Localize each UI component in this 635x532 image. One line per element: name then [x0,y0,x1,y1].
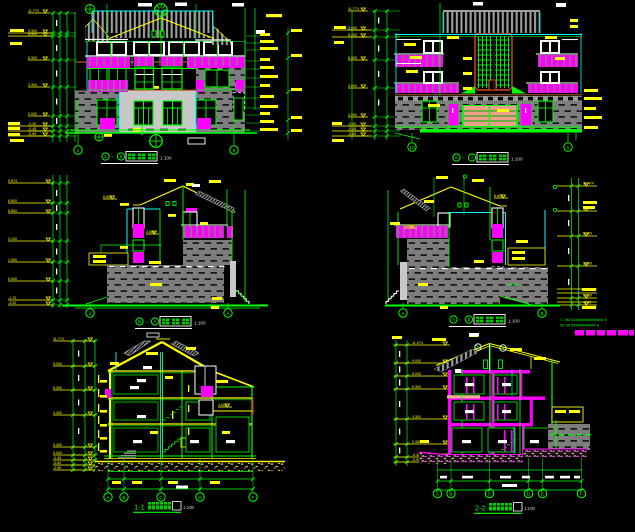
svg-text:C: C [488,491,492,497]
svg-text:-2.00: -2.00 [8,301,16,305]
svg-text:D: D [527,491,531,497]
svg-text:2-2: 2-2 [475,504,486,513]
svg-text:B: B [540,311,543,317]
svg-text:1:100: 1:100 [508,319,520,324]
svg-text:6.300: 6.300 [412,385,421,389]
svg-text:1.500: 1.500 [8,258,17,262]
svg-text:5.100: 5.100 [583,232,592,236]
svg-text:1:100: 1:100 [194,321,206,326]
svg-text:-1.70: -1.70 [8,296,16,300]
svg-text:B: B [122,495,125,501]
svg-text:11.774: 11.774 [348,7,359,11]
svg-text:-0.30: -0.30 [28,122,36,126]
svg-text:-0.45: -0.45 [28,127,36,131]
svg-text:3.300: 3.300 [412,415,421,419]
svg-text:F: F [580,491,583,497]
svg-text:~: ~ [111,155,114,160]
svg-text:8.900: 8.900 [28,32,37,36]
svg-text:-0.90: -0.90 [412,458,420,462]
svg-text:9.574: 9.574 [8,179,17,183]
svg-text:8.400: 8.400 [348,33,357,37]
svg-text:8: 8 [233,148,236,154]
svg-text:0.000: 0.000 [8,277,17,281]
svg-text:1: 1 [77,148,80,154]
svg-text:A: A [154,319,157,324]
svg-text:E: E [541,491,544,497]
svg-text:4.600: 4.600 [218,403,227,407]
svg-text:6.600: 6.600 [8,199,17,203]
svg-text:6.300: 6.300 [28,56,37,60]
svg-text:F: F [252,495,255,501]
svg-text:6.600: 6.600 [103,195,112,199]
svg-text:-0.90: -0.90 [53,466,61,470]
svg-text:1:100: 1:100 [183,505,195,510]
svg-text:B: B [449,491,452,497]
svg-text:11.774: 11.774 [28,9,39,13]
svg-text:11.774: 11.774 [53,337,64,341]
svg-text:1:100: 1:100 [160,156,172,161]
svg-text:11.474: 11.474 [583,182,594,186]
svg-text:0.000: 0.000 [583,294,592,298]
svg-text:3.100: 3.100 [8,237,17,241]
svg-text:9.000: 9.000 [412,359,421,363]
svg-text:9.000: 9.000 [53,362,62,366]
svg-text:7. 4M 4#####M####### 6: 7. 4M 4#####M####### 6 [560,317,607,322]
svg-text:B: B [138,319,141,324]
svg-text:8.000: 8.000 [412,372,421,376]
svg-text:~: ~ [459,318,462,323]
svg-text:5# 3# 5########## 6: 5# 3# 5########## 6 [560,323,600,328]
svg-text:0.300: 0.300 [53,443,62,447]
svg-text:3.000: 3.000 [348,84,357,88]
svg-text:3.000: 3.000 [404,224,413,228]
svg-text:6.300: 6.300 [53,386,62,390]
svg-text:B: B [468,317,471,322]
svg-text:D: D [198,495,202,501]
svg-text:-0.60: -0.60 [28,132,36,136]
svg-text:C: C [159,495,163,501]
svg-text:-0.60: -0.60 [583,301,591,305]
svg-text:11.274: 11.274 [412,341,423,345]
svg-text:3.300: 3.300 [28,83,37,87]
svg-text:0.000: 0.000 [348,113,357,117]
svg-text:0.000: 0.000 [53,451,62,455]
svg-text:1: 1 [567,145,570,151]
svg-text:1:100: 1:100 [511,157,523,162]
svg-text:-0.45: -0.45 [53,456,61,460]
svg-text:1-1: 1-1 [134,503,145,512]
svg-text:3.300: 3.300 [53,411,62,415]
svg-text:3.000: 3.000 [583,262,592,266]
svg-text:~: ~ [462,156,465,161]
svg-text:-0.60: -0.60 [53,461,61,465]
svg-text:9.000: 9.000 [348,26,357,30]
svg-text:1:100: 1:100 [524,506,536,511]
svg-text:0.000: 0.000 [28,112,37,116]
svg-text:A: A [452,317,455,322]
svg-text:~: ~ [145,320,148,325]
svg-text:6.000: 6.000 [348,56,357,60]
svg-text:10: 10 [409,145,415,151]
svg-text:5.800: 5.800 [8,209,17,213]
svg-text:2.800: 2.800 [146,230,155,234]
svg-text:-0.45: -0.45 [412,453,420,457]
svg-text:6.600: 6.600 [494,194,503,198]
svg-text:0.300: 0.300 [412,440,421,444]
